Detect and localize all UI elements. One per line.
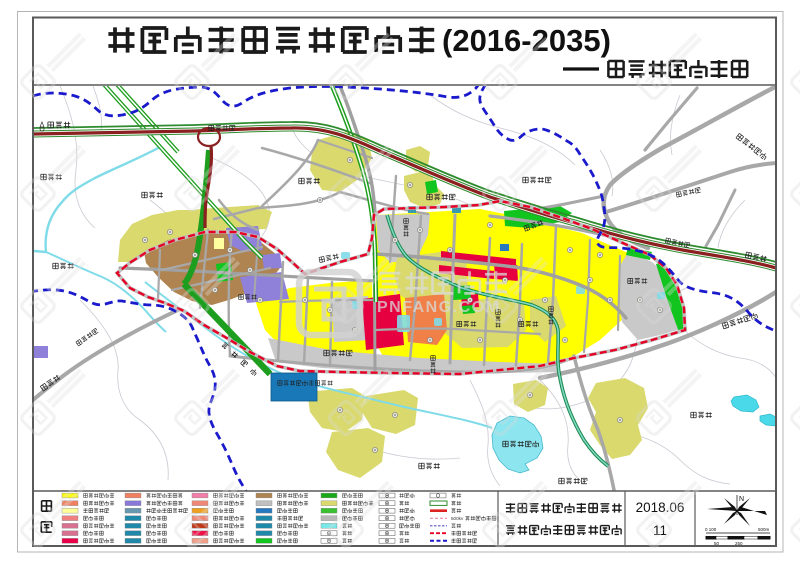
svg-text:PNFANG.COM: PNFANG.COM [377,299,500,316]
